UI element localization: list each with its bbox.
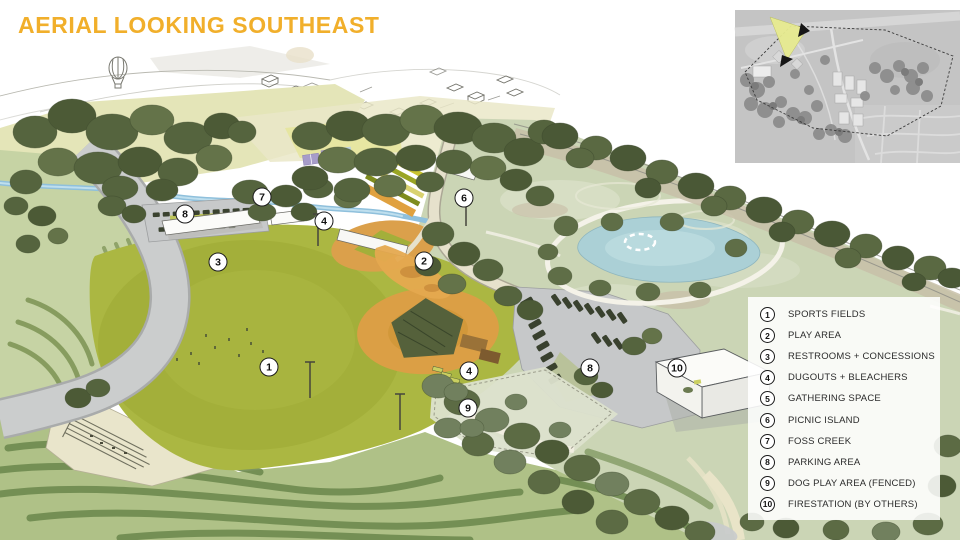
legend-item-label: SPORTS FIELDS [788, 309, 865, 320]
legend-item-label: PICNIC ISLAND [788, 415, 860, 426]
map-marker: 8 [581, 359, 600, 378]
legend-item-number: 10 [760, 497, 775, 512]
legend-item-number: 7 [760, 434, 775, 449]
legend-item: 5GATHERING SPACE [760, 389, 934, 408]
map-marker: 2 [415, 252, 434, 271]
legend-item-label: GATHERING SPACE [788, 393, 881, 404]
legend-item-number: 4 [760, 370, 775, 385]
legend-item: 4DUGOUTS + BLEACHERS [760, 368, 934, 387]
map-marker: 1 [260, 358, 279, 377]
page-title: AERIAL LOOKING SOUTHEAST [18, 12, 380, 39]
legend-item-label: RESTROOMS + CONCESSIONS [788, 351, 935, 362]
legend-item-label: PARKING AREA [788, 457, 860, 468]
map-marker: 9 [459, 399, 478, 418]
hot-air-balloon-sketch [109, 57, 127, 88]
legend-item-number: 6 [760, 413, 775, 428]
legend-item-label: DUGOUTS + BLEACHERS [788, 372, 908, 383]
legend-item: 8PARKING AREA [760, 453, 934, 472]
legend-item: 2PLAY AREA [760, 326, 934, 345]
legend-item-number: 1 [760, 307, 775, 322]
map-marker: 6 [455, 189, 474, 208]
legend-item-number: 3 [760, 349, 775, 364]
legend-item-label: DOG PLAY AREA (FENCED) [788, 478, 916, 489]
legend-item-number: 5 [760, 391, 775, 406]
legend-item: 1SPORTS FIELDS [760, 305, 934, 324]
legend-item: 9DOG PLAY AREA (FENCED) [760, 474, 934, 493]
legend-item-number: 8 [760, 455, 775, 470]
legend-item-label: FIRESTATION (BY OTHERS) [788, 499, 918, 510]
legend-item: 6PICNIC ISLAND [760, 411, 934, 430]
legend-item-number: 2 [760, 328, 775, 343]
inset-map [735, 10, 960, 163]
legend-item-number: 9 [760, 476, 775, 491]
legend-panel: 1SPORTS FIELDS2PLAY AREA3RESTROOMS + CON… [748, 297, 940, 520]
map-marker: 4 [315, 212, 334, 231]
legend-item: 3RESTROOMS + CONCESSIONS [760, 347, 934, 366]
legend-item-label: FOSS CREEK [788, 436, 851, 447]
map-marker: 8 [176, 205, 195, 224]
map-marker: 3 [209, 253, 228, 272]
legend-item-label: PLAY AREA [788, 330, 841, 341]
legend-item: 7FOSS CREEK [760, 432, 934, 451]
map-marker: 10 [668, 359, 687, 378]
map-marker: 7 [253, 188, 272, 207]
map-marker: 4 [460, 362, 479, 381]
legend-item: 10FIRESTATION (BY OTHERS) [760, 495, 934, 514]
slide: AERIAL LOOKING SOUTHEAST 874632149810 1S… [0, 0, 960, 540]
